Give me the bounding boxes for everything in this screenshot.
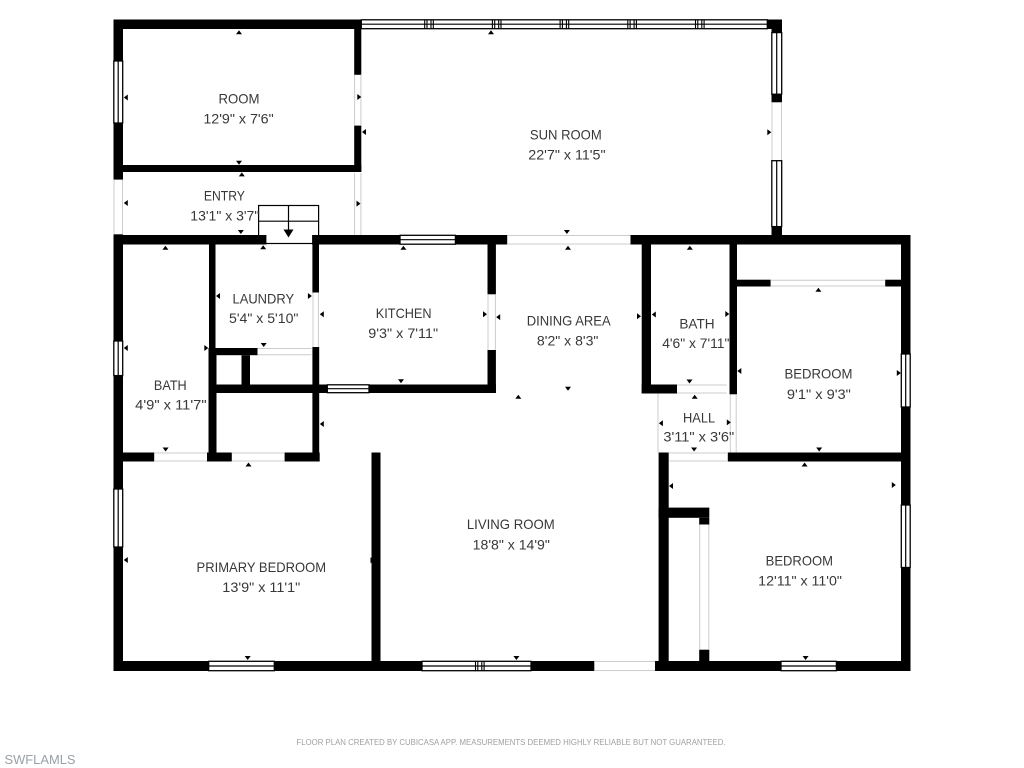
svg-text:PRIMARY BEDROOM: PRIMARY BEDROOM <box>197 559 327 575</box>
svg-text:18'8" x 14'9": 18'8" x 14'9" <box>473 537 550 553</box>
svg-text:LAUNDRY: LAUNDRY <box>233 290 295 306</box>
svg-text:9'3" x 7'11": 9'3" x 7'11" <box>368 325 438 341</box>
svg-text:ENTRY: ENTRY <box>204 188 246 204</box>
svg-text:13'9" x 11'1": 13'9" x 11'1" <box>222 579 300 595</box>
svg-text:9'1" x 9'3": 9'1" x 9'3" <box>787 386 851 402</box>
svg-text:ROOM: ROOM <box>219 91 260 107</box>
svg-text:HALL: HALL <box>683 409 715 425</box>
svg-text:FLOOR PLAN CREATED BY CUBICASA: FLOOR PLAN CREATED BY CUBICASA APP. MEAS… <box>297 738 726 747</box>
svg-text:8'2" x 8'3": 8'2" x 8'3" <box>537 333 599 349</box>
svg-text:BEDROOM: BEDROOM <box>766 553 833 569</box>
svg-text:LIVING ROOM: LIVING ROOM <box>467 516 555 532</box>
svg-text:5'4" x 5'10": 5'4" x 5'10" <box>229 310 298 326</box>
svg-text:12'9" x 7'6": 12'9" x 7'6" <box>203 111 273 127</box>
svg-text:BEDROOM: BEDROOM <box>785 366 853 382</box>
svg-text:4'9" x 11'7": 4'9" x 11'7" <box>135 396 206 412</box>
svg-text:12'11" x 11'0": 12'11" x 11'0" <box>758 573 842 589</box>
svg-text:4'6" x 7'11": 4'6" x 7'11" <box>662 335 729 351</box>
svg-text:3'11" x 3'6": 3'11" x 3'6" <box>663 429 734 445</box>
svg-text:BATH: BATH <box>154 377 187 393</box>
svg-text:SUN ROOM: SUN ROOM <box>530 127 602 143</box>
svg-text:DINING AREA: DINING AREA <box>527 313 612 329</box>
svg-text:KITCHEN: KITCHEN <box>376 305 432 321</box>
svg-text:13'1" x 3'7": 13'1" x 3'7" <box>190 208 259 224</box>
svg-text:BATH: BATH <box>679 315 714 331</box>
svg-text:SWFLAMLS: SWFLAMLS <box>5 752 76 767</box>
svg-text:22'7" x 11'5": 22'7" x 11'5" <box>528 147 605 163</box>
